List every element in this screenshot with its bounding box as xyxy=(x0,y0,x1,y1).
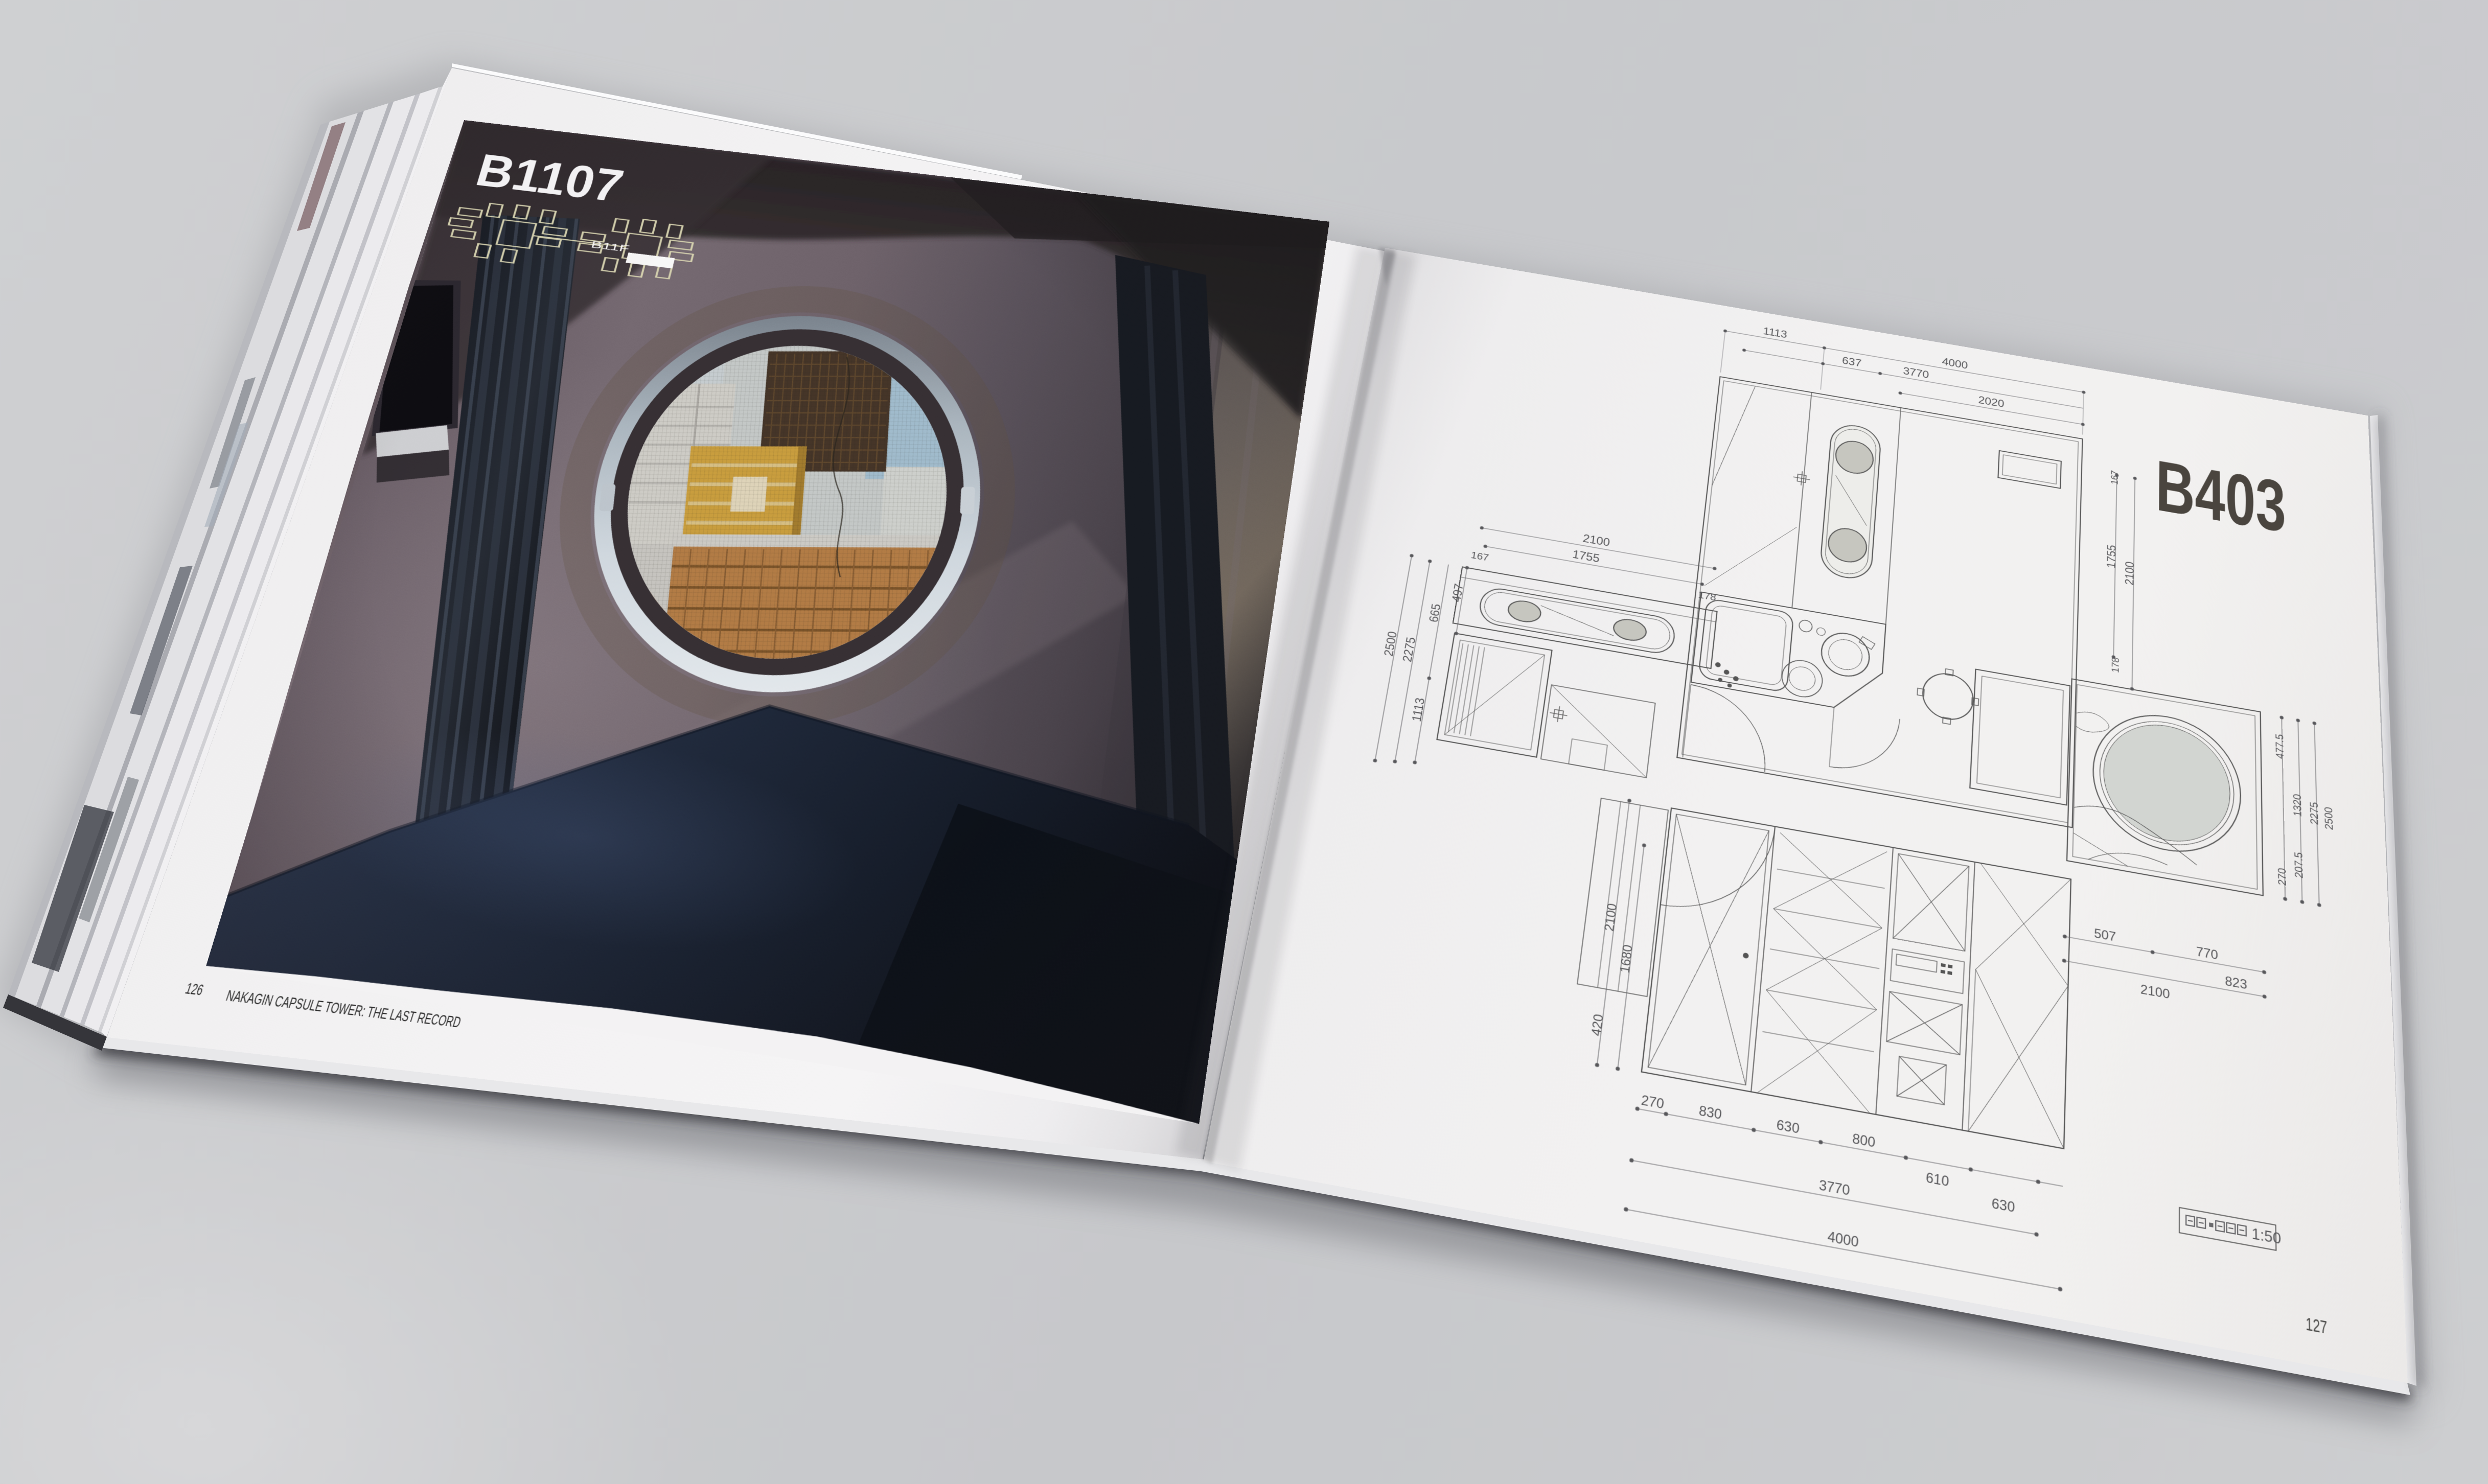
svg-text:126: 126 xyxy=(183,980,205,999)
svg-text:2100: 2100 xyxy=(1582,532,1610,549)
svg-text:770: 770 xyxy=(2196,945,2218,962)
svg-text:497: 497 xyxy=(1449,583,1466,603)
svg-text:1:50: 1:50 xyxy=(2251,1225,2281,1247)
svg-text:2275: 2275 xyxy=(2308,801,2320,825)
svg-text:2500: 2500 xyxy=(1381,631,1400,658)
svg-text:3770: 3770 xyxy=(1903,366,1929,381)
svg-text:270: 270 xyxy=(1641,1093,1665,1112)
svg-text:2275: 2275 xyxy=(1400,636,1418,663)
svg-text:B403: B403 xyxy=(2155,446,2287,548)
svg-text:4000: 4000 xyxy=(1942,356,1968,371)
svg-text:167: 167 xyxy=(2109,470,2121,485)
svg-text:2100: 2100 xyxy=(1602,902,1620,933)
svg-text:270: 270 xyxy=(2276,867,2289,887)
svg-text:1320: 1320 xyxy=(2291,793,2304,818)
svg-text:630: 630 xyxy=(1991,1196,2015,1216)
svg-text:207.5: 207.5 xyxy=(2292,851,2305,879)
svg-text:507: 507 xyxy=(2094,927,2116,944)
svg-text:1113: 1113 xyxy=(1410,697,1427,723)
svg-text:830: 830 xyxy=(1698,1104,1723,1123)
svg-text:1113: 1113 xyxy=(1763,326,1788,340)
svg-text:1680: 1680 xyxy=(1618,943,1635,974)
svg-text:800: 800 xyxy=(1852,1131,1876,1150)
svg-text:630: 630 xyxy=(1776,1118,1800,1137)
svg-text:823: 823 xyxy=(2225,975,2247,992)
svg-text:2100: 2100 xyxy=(2123,561,2137,586)
svg-text:477.5: 477.5 xyxy=(2273,733,2286,759)
svg-text:2020: 2020 xyxy=(1978,395,2005,410)
svg-text:167: 167 xyxy=(1470,550,1490,563)
svg-text:178: 178 xyxy=(2109,657,2122,674)
svg-text:1755: 1755 xyxy=(1572,548,1600,565)
svg-text:420: 420 xyxy=(1589,1013,1606,1037)
svg-text:2500: 2500 xyxy=(2322,806,2335,830)
svg-text:127: 127 xyxy=(2306,1313,2328,1338)
svg-text:1755: 1755 xyxy=(2105,544,2118,569)
svg-text:2100: 2100 xyxy=(2140,983,2170,1002)
svg-text:637: 637 xyxy=(1841,355,1862,369)
svg-text:665: 665 xyxy=(1427,603,1444,623)
svg-text:610: 610 xyxy=(1925,1170,1949,1190)
